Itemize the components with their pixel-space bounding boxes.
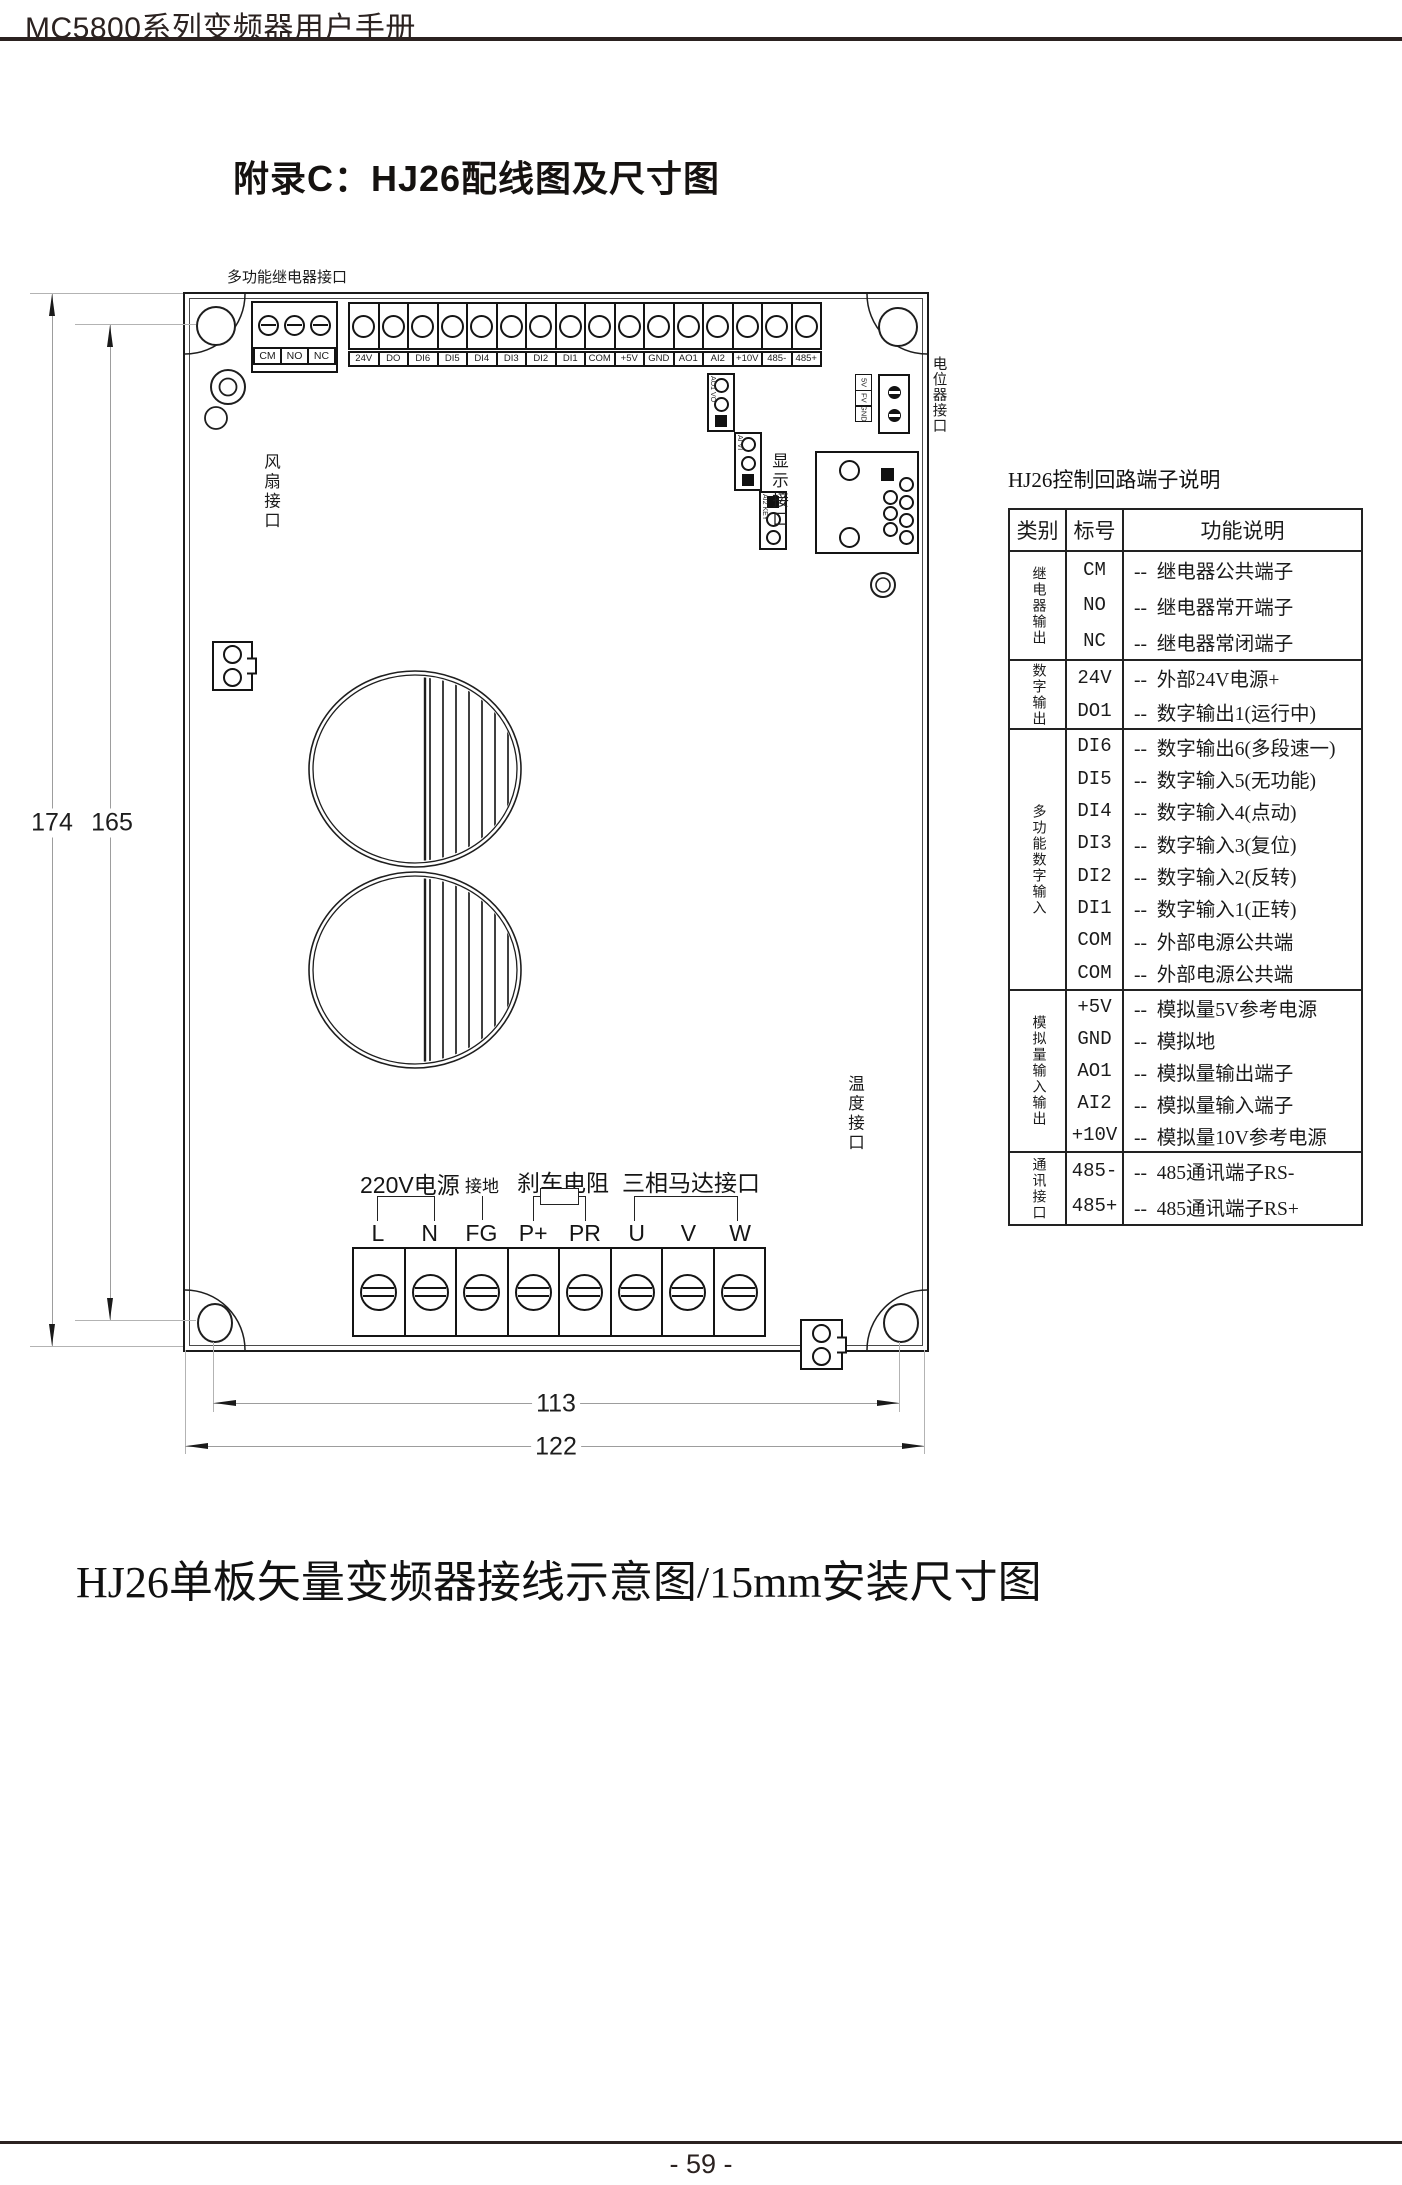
pin-icon xyxy=(883,490,898,505)
terminal-485pos: 485+ xyxy=(791,302,823,370)
terminal-table: 类别 标号 功能说明 继电器输出 CM-- 继电器公共端子 NO-- 继电器常开… xyxy=(1008,508,1363,1226)
jumper-label: AO1 VO xyxy=(709,376,716,402)
pin-icon xyxy=(899,530,914,545)
jumper-cap-icon xyxy=(715,415,727,427)
power-name-pplus: P+ xyxy=(507,1220,559,1247)
screw-icon xyxy=(412,1274,449,1311)
table-row: COM-- 外部电源公共端 xyxy=(1067,924,1361,956)
screw-icon xyxy=(258,315,279,336)
dim-label-165: 165 xyxy=(87,809,137,838)
terminal-hole-icon xyxy=(441,315,464,338)
arrow-down-icon xyxy=(49,1324,55,1346)
terminal-gnd: GND xyxy=(643,302,675,370)
power-terminal xyxy=(558,1247,612,1337)
pot-pin-5v: 5V xyxy=(860,378,868,387)
power-terminal xyxy=(404,1247,458,1337)
table-row: DO1-- 数字输出1(运行中) xyxy=(1067,695,1361,729)
table-row: DI3-- 数字输入3(复位) xyxy=(1067,827,1361,859)
terminal-hole-icon xyxy=(352,315,375,338)
terminal-di1: DI1 xyxy=(555,302,587,370)
relay-port-label: 多功能继电器接口 xyxy=(227,266,347,287)
pot-pin-gnd: GND xyxy=(860,405,868,422)
table-row: DI5-- 数字输入5(无功能) xyxy=(1067,762,1361,794)
pin-hole-icon xyxy=(812,1347,831,1366)
table-row: 485--- 485通讯端子RS- xyxy=(1067,1153,1361,1189)
extension-line xyxy=(924,1350,925,1454)
jumper-ao1: AO1 VO xyxy=(707,373,735,432)
extension-line xyxy=(899,1342,900,1412)
table-row: NO-- 继电器常开端子 xyxy=(1067,588,1361,624)
power-terminal-block xyxy=(352,1247,766,1337)
pin-icon xyxy=(899,495,914,510)
terminal-hole-icon xyxy=(795,315,818,338)
extension-line xyxy=(185,1350,186,1454)
display-connector xyxy=(815,451,919,554)
pot-port-label: 电位器接口 xyxy=(931,356,946,434)
motor-label: 三相马达接口 xyxy=(622,1164,760,1198)
terminal-di3: DI3 xyxy=(496,302,528,370)
terminal-5v: +5V xyxy=(614,302,646,370)
col-header-function: 功能说明 xyxy=(1124,510,1361,550)
pin-icon xyxy=(883,522,898,537)
screw-icon xyxy=(310,315,331,336)
dim-label-174: 174 xyxy=(27,809,77,838)
power-name-pr: PR xyxy=(559,1220,611,1247)
screw-icon xyxy=(721,1274,758,1311)
arrow-right-icon xyxy=(902,1443,924,1449)
screw-icon xyxy=(360,1274,397,1311)
category-label: 多功能数字输入 xyxy=(1010,730,1067,989)
table-row: COM-- 外部电源公共端 xyxy=(1067,957,1361,989)
arrow-left-icon xyxy=(214,1400,236,1406)
power-terminal xyxy=(610,1247,664,1337)
power-name-u: U xyxy=(611,1220,663,1247)
screw-icon xyxy=(566,1274,603,1311)
arrow-right-icon xyxy=(877,1400,899,1406)
figure-caption: HJ26单板矢量变频器接线示意图/15mm安装尺寸图 xyxy=(76,1546,1042,1610)
terminal-hole-icon xyxy=(647,315,670,338)
group-analog-io: 模拟量输入输出 +5V-- 模拟量5V参考电源 GND-- 模拟地 AO1-- … xyxy=(1010,991,1361,1153)
connector-notch xyxy=(837,1336,847,1353)
pin-hole-icon xyxy=(223,645,242,664)
ground-line xyxy=(482,1196,483,1220)
relay-screws xyxy=(253,303,336,347)
table-row: 485+-- 485通讯端子RS+ xyxy=(1067,1189,1361,1225)
pin-hole-icon xyxy=(223,668,242,687)
relay-terminal-cm: CM xyxy=(253,347,282,365)
extension-line xyxy=(75,324,196,325)
extension-line xyxy=(75,1320,196,1321)
jumper-label: AI VI xyxy=(736,435,743,450)
table-header-row: 类别 标号 功能说明 xyxy=(1010,510,1361,552)
table-row: +5V-- 模拟量5V参考电源 xyxy=(1067,991,1361,1023)
terminal-hole-icon xyxy=(529,315,552,338)
temp-port-label: 温度接口 xyxy=(846,1075,863,1153)
arrow-down-icon xyxy=(107,1298,113,1320)
terminal-hole-icon xyxy=(411,315,434,338)
terminal-di2: DI2 xyxy=(525,302,557,370)
category-label: 继电器输出 xyxy=(1010,552,1067,659)
control-terminal-strip: 24V DO DI6 DI5 DI4 DI3 DI2 DI1 COM +5V G… xyxy=(348,302,852,370)
table-row: +10V-- 模拟量10V参考电源 xyxy=(1067,1119,1361,1151)
mains-bracket xyxy=(377,1196,435,1221)
fan-port-label: 风扇接口 xyxy=(262,453,279,531)
page-number: - 59 - xyxy=(0,2149,1402,2180)
motor-bracket xyxy=(634,1196,738,1221)
brake-resistor-icon xyxy=(540,1188,579,1205)
mains-label: 220V电源 xyxy=(360,1166,460,1200)
jumper-cap-icon xyxy=(742,474,754,486)
terminal-hole-icon xyxy=(500,315,523,338)
group-digital-output: 数字输出 24V-- 外部24V电源+ DO1-- 数字输出1(运行中) xyxy=(1010,661,1361,730)
pot-pin-labels: 5V FV GND xyxy=(855,374,872,422)
pot-connector xyxy=(878,374,910,434)
jumper-ai: AI VI xyxy=(734,432,762,491)
power-terminal-names: L N FG P+ PR U V W xyxy=(352,1220,766,1247)
ground-label: 接地 xyxy=(465,1172,499,1197)
arrow-up-icon xyxy=(49,294,55,316)
pin1-square-icon xyxy=(881,468,894,481)
table-row: NC-- 继电器常闭端子 xyxy=(1067,623,1361,659)
table-row: DI6-- 数字输出6(多段速一) xyxy=(1067,730,1361,762)
table-row: AO1-- 模拟量输出端子 xyxy=(1067,1055,1361,1087)
screw-icon xyxy=(888,386,901,399)
power-name-fg: FG xyxy=(456,1220,508,1247)
power-terminal xyxy=(352,1247,406,1337)
table-row: CM-- 继电器公共端子 xyxy=(1067,552,1361,588)
terminal-hole-icon xyxy=(706,315,729,338)
header-rule xyxy=(0,37,1402,41)
pin-icon xyxy=(883,506,898,521)
terminal-24v: 24V xyxy=(348,302,380,370)
page-title: 附录C：HJ26配线图及尺寸图 xyxy=(233,150,720,202)
power-name-v: V xyxy=(663,1220,715,1247)
table-title: HJ26控制回路端子说明 xyxy=(1008,464,1220,494)
terminal-hole-icon xyxy=(559,315,582,338)
category-label: 数字输出 xyxy=(1010,661,1067,728)
screw-icon xyxy=(463,1274,500,1311)
power-name-n: N xyxy=(404,1220,456,1247)
table-row: DI1-- 数字输入1(正转) xyxy=(1067,892,1361,924)
relay-terminal-no: NO xyxy=(280,347,309,365)
terminal-hole-icon xyxy=(677,315,700,338)
table-row: AI2-- 模拟量输入端子 xyxy=(1067,1087,1361,1119)
arrow-left-icon xyxy=(186,1443,208,1449)
screw-icon xyxy=(888,409,901,422)
col-header-category: 类别 xyxy=(1010,510,1067,550)
terminal-ao1: AO1 xyxy=(673,302,705,370)
terminal-do: DO xyxy=(378,302,410,370)
table-row: DI2-- 数字输入2(反转) xyxy=(1067,859,1361,891)
power-terminal xyxy=(661,1247,715,1337)
terminal-hole-icon xyxy=(382,315,405,338)
terminal-di5: DI5 xyxy=(437,302,469,370)
jumper-pin-icon xyxy=(741,456,756,471)
arrow-up-icon xyxy=(107,325,113,347)
terminal-com: COM xyxy=(584,302,616,370)
pin-icon xyxy=(899,513,914,528)
table-row: 24V-- 外部24V电源+ xyxy=(1067,661,1361,695)
terminal-hole-icon xyxy=(736,315,759,338)
jumper-pin-icon xyxy=(766,530,781,545)
relay-terminal-block: CM NO NC xyxy=(251,301,338,373)
connector-notch xyxy=(247,658,257,675)
screw-icon xyxy=(669,1274,706,1311)
terminal-485neg: 485- xyxy=(761,302,793,370)
pin-hole-icon xyxy=(812,1324,831,1343)
power-terminal xyxy=(507,1247,561,1337)
power-name-w: W xyxy=(714,1220,766,1247)
power-name-l: L xyxy=(352,1220,404,1247)
terminal-10v: +10V xyxy=(732,302,764,370)
screw-icon xyxy=(618,1274,655,1311)
pot-pin-fv: FV xyxy=(860,393,868,403)
fan-connector xyxy=(212,641,253,691)
dim-label-113: 113 xyxy=(532,1390,580,1419)
hj26-board-outline: CM NO NC 24V DO DI6 DI5 DI4 DI3 DI2 DI1 … xyxy=(183,292,929,1352)
category-label: 通讯接口 xyxy=(1010,1153,1067,1224)
power-terminal xyxy=(713,1247,767,1337)
category-label: 模拟量输入输出 xyxy=(1010,991,1067,1151)
group-relay-output: 继电器输出 CM-- 继电器公共端子 NO-- 继电器常开端子 NC-- 继电器… xyxy=(1010,552,1361,661)
screw-icon xyxy=(515,1274,552,1311)
dim-label-122: 122 xyxy=(531,1433,581,1462)
mount-hole-icon xyxy=(839,527,860,548)
table-row: GND-- 模拟地 xyxy=(1067,1023,1361,1055)
terminal-hole-icon xyxy=(618,315,641,338)
manual-page: MC5800系列变频器用户手册 附录C：HJ26配线图及尺寸图 多功能继电器接口 xyxy=(0,0,1402,2185)
terminal-hole-icon xyxy=(470,315,493,338)
table-row: DI4-- 数字输入4(点动) xyxy=(1067,795,1361,827)
footer-rule xyxy=(0,2141,1402,2144)
relay-terminal-nc: NC xyxy=(307,347,336,365)
jumper-label: AI2 KEY xyxy=(761,494,768,520)
group-comm-port: 通讯接口 485--- 485通讯端子RS- 485+-- 485通讯端子RS+ xyxy=(1010,1153,1361,1224)
terminal-di4: DI4 xyxy=(466,302,498,370)
mount-hole-icon xyxy=(839,460,860,481)
display-port-label: 显示接口 xyxy=(770,452,787,530)
terminal-ai2: AI2 xyxy=(702,302,734,370)
terminal-hole-icon xyxy=(588,315,611,338)
terminal-hole-icon xyxy=(765,315,788,338)
group-digital-input: 多功能数字输入 DI6-- 数字输出6(多段速一) DI5-- 数字输入5(无功… xyxy=(1010,730,1361,991)
extension-line xyxy=(30,1346,183,1347)
col-header-label: 标号 xyxy=(1067,510,1124,550)
power-terminal xyxy=(455,1247,509,1337)
screw-icon xyxy=(284,315,305,336)
pin-icon xyxy=(899,477,914,492)
terminal-di6: DI6 xyxy=(407,302,439,370)
temp-connector xyxy=(800,1319,843,1370)
